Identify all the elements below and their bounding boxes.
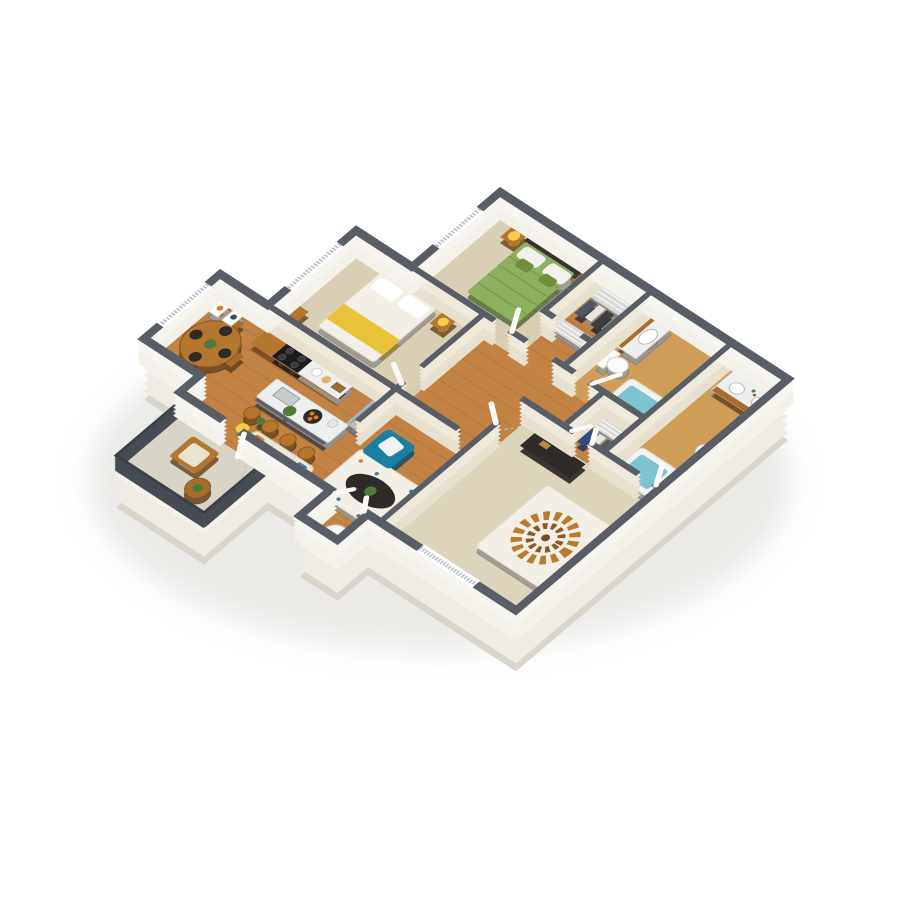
floorplan-stage — [0, 0, 900, 900]
floorplan-3d-render — [0, 0, 900, 900]
